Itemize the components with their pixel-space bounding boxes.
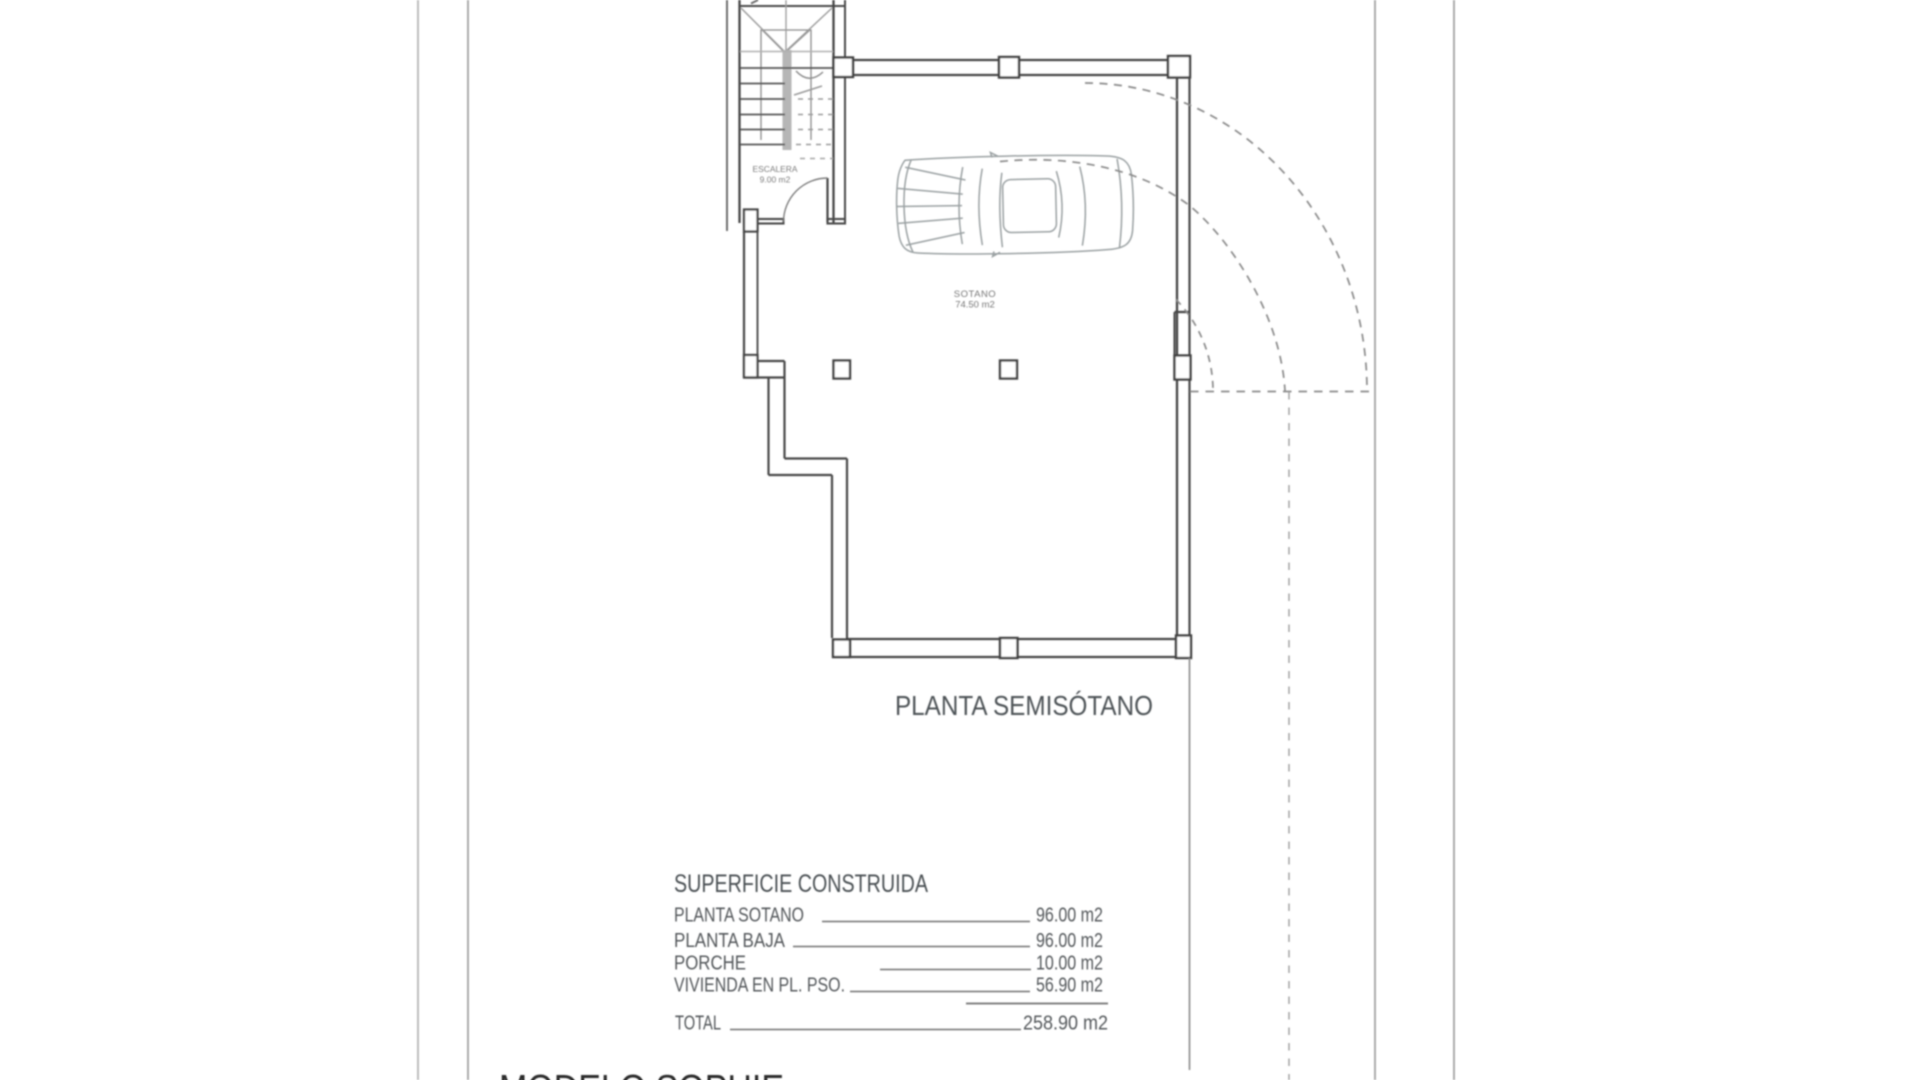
svg-text:PLANTA SEMISÓTANO: PLANTA SEMISÓTANO — [895, 690, 1153, 721]
svg-text:MODELO SOPHIE: MODELO SOPHIE — [499, 1068, 784, 1080]
svg-text:SOTANO: SOTANO — [954, 289, 996, 300]
svg-text:TOTAL: TOTAL — [675, 1013, 721, 1035]
svg-text:SUPERFICIE CONSTRUIDA: SUPERFICIE CONSTRUIDA — [674, 870, 928, 898]
svg-text:96.00 m2: 96.00 m2 — [1036, 930, 1103, 952]
svg-text:PORCHE: PORCHE — [674, 953, 746, 975]
svg-text:74.50 m2: 74.50 m2 — [955, 300, 995, 311]
svg-text:PLANTA BAJA: PLANTA BAJA — [674, 930, 786, 952]
svg-text:56.90 m2: 56.90 m2 — [1036, 975, 1103, 997]
svg-text:VIVIENDA EN PL. PSO.: VIVIENDA EN PL. PSO. — [674, 975, 845, 997]
svg-text:ESCALERA: ESCALERA — [753, 164, 798, 174]
svg-text:258.90 m2: 258.90 m2 — [1023, 1013, 1108, 1035]
svg-text:10.00 m2: 10.00 m2 — [1036, 953, 1103, 975]
svg-text:PLANTA SOTANO: PLANTA SOTANO — [674, 905, 804, 927]
svg-text:9.00 m2: 9.00 m2 — [760, 175, 791, 185]
svg-text:96.00 m2: 96.00 m2 — [1036, 905, 1103, 927]
